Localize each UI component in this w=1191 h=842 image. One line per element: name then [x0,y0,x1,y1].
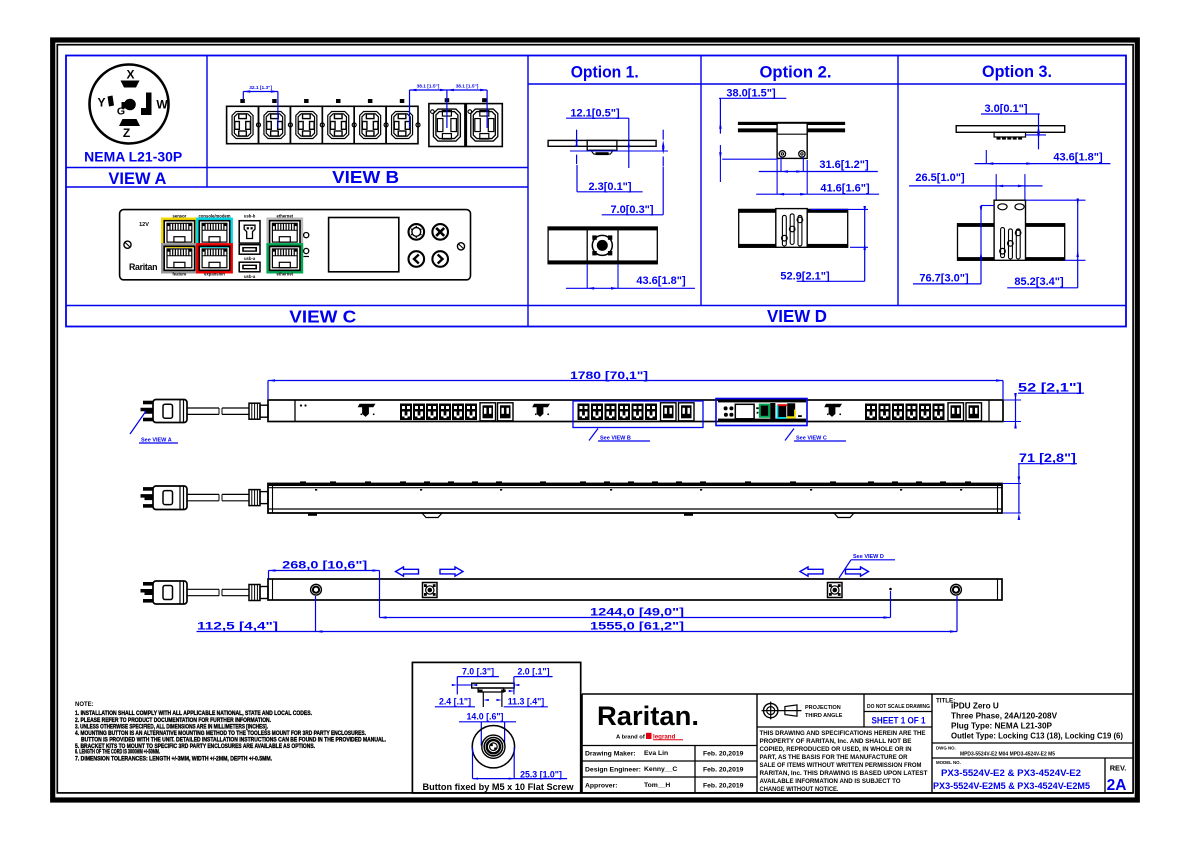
svg-text:2.4 [.1"]: 2.4 [.1"] [439,697,471,707]
svg-text:usb-b: usb-b [244,214,256,219]
svg-text:W: W [156,98,168,112]
svg-text:VIEW C: VIEW C [289,307,356,327]
svg-text:iPDU Zero U: iPDU Zero U [951,701,999,710]
svg-text:console/modem: console/modem [199,214,231,219]
svg-text:Raritan: Raritan [129,262,157,272]
svg-text:41.6[1.6"]: 41.6[1.6"] [820,183,870,195]
svg-text:DWG NO.: DWG NO. [936,746,956,751]
svg-text:Plug Type: NEMA L21-30P: Plug Type: NEMA L21-30P [951,721,1053,730]
svg-text:76.7[3.0"]: 76.7[3.0"] [919,273,969,285]
svg-text:X: X [126,68,134,82]
svg-text:112,5 [4,4"]: 112,5 [4,4"] [197,621,278,633]
svg-text:Z: Z [123,126,130,140]
svg-text:usb-a: usb-a [244,274,256,279]
svg-text:THIRD ANGLE: THIRD ANGLE [805,713,843,719]
svg-text:expansion: expansion [204,272,225,277]
svg-text:2A: 2A [1107,777,1127,794]
svg-text:PROJECTION: PROJECTION [805,705,841,711]
svg-text:RARITAN, Inc. THIS DRAWING IS: RARITAN, Inc. THIS DRAWING IS BASED UPON… [760,770,928,777]
svg-text:DO NOT SCALE DRAWING: DO NOT SCALE DRAWING [867,704,930,710]
svg-text:43.6[1.8"]: 43.6[1.8"] [1053,151,1103,163]
svg-text:ethernet: ethernet [277,272,294,277]
svg-text:1244,0 [49,0"]: 1244,0 [49,0"] [590,607,684,619]
svg-text:Eva Lin: Eva Lin [644,750,668,757]
svg-text:PROPERTY OF RARITAN, Inc. AND: PROPERTY OF RARITAN, Inc. AND SHALL NOT … [760,738,912,745]
svg-text:COPIED, REPRODUCED OR USED, IN: COPIED, REPRODUCED OR USED, IN WHOLE OR … [760,746,912,753]
svg-text:SHEET 1 OF 1: SHEET 1 OF 1 [872,716,927,727]
svg-text:Drawing Maker:: Drawing Maker: [585,751,636,758]
svg-text:Option 2.: Option 2. [760,63,832,82]
svg-text:85.2[3.4"]: 85.2[3.4"] [1014,276,1064,288]
svg-text:Feb. 20,2019: Feb. 20,2019 [703,751,744,758]
svg-text:Button fixed by M5 x 10 Flat S: Button fixed by M5 x 10 Flat Screw [423,782,575,792]
svg-text:ethernet: ethernet [277,214,294,219]
svg-text:NOTE:: NOTE: [75,702,94,708]
svg-text:14.0 [.6"]: 14.0 [.6"] [467,712,504,722]
svg-text:11.3 [.4"]: 11.3 [.4"] [508,697,545,707]
svg-text:VIEW D: VIEW D [767,306,827,326]
svg-text:43.6[1.8"]: 43.6[1.8"] [636,275,686,287]
svg-text:MODEL NO.: MODEL NO. [936,760,961,765]
svg-text:26.5[1.0"]: 26.5[1.0"] [915,172,965,184]
svg-text:SALE OF ITEMS WITHOUT WRITTEN: SALE OF ITEMS WITHOUT WRITTEN PERMISSION… [760,762,922,769]
svg-text:1. INSTALLATION SHALL COMPLY W: 1. INSTALLATION SHALL COMPLY WITH ALL AP… [75,710,312,717]
svg-text:Kenny__C: Kenny__C [644,766,677,773]
svg-text:38.1 [1.5"]: 38.1 [1.5"] [417,84,440,90]
svg-text:3.0[0.1"]: 3.0[0.1"] [984,103,1027,115]
svg-text:sensor: sensor [173,214,187,219]
svg-text:REV.: REV. [1110,764,1127,773]
svg-text:VIEW A: VIEW A [108,169,166,188]
svg-text:2.0 [.1"]: 2.0 [.1"] [517,667,549,677]
svg-text:PX3-5524V-E2M5 & PX3-4524V-E2M: PX3-5524V-E2M5 & PX3-4524V-E2M5 [933,781,1091,792]
svg-text:AVAILABLE INFORMATION AND IS S: AVAILABLE INFORMATION AND IS SUBJECT TO [760,778,901,785]
svg-text:Raritan.: Raritan. [597,701,699,731]
svg-text:A brand of: A brand of [616,735,645,741]
svg-text:Option 3.: Option 3. [982,62,1052,81]
svg-text:12V: 12V [139,222,149,228]
svg-text:CHANGE WITHOUT NOTICE.: CHANGE WITHOUT NOTICE. [760,786,839,793]
svg-text:NEMA L21-30P: NEMA L21-30P [84,149,182,164]
svg-text:Approver:: Approver: [585,783,617,790]
svg-text:7.0 [.3"]: 7.0 [.3"] [462,667,494,677]
svg-text:VIEW B: VIEW B [332,167,399,187]
svg-text:feature: feature [172,272,187,277]
svg-text:Option 1.: Option 1. [571,63,639,82]
svg-text:Feb. 20,2019: Feb. 20,2019 [703,783,744,790]
svg-text:Three Phase, 24A/120-208V: Three Phase, 24A/120-208V [951,712,1058,721]
svg-text:7. DIMENSION TOLERANCES: LENGT: 7. DIMENSION TOLERANCES: LENGTH +/-3MM, … [75,755,272,762]
svg-text:MPD3-5524V-E2 M04 MPD3-4524V-E: MPD3-5524V-E2 M04 MPD3-4524V-E2 M5 [960,752,1055,758]
svg-text:38.0[1.5"]: 38.0[1.5"] [726,88,776,100]
svg-text:PX3-5524V-E2 & PX3-4524V-E2: PX3-5524V-E2 & PX3-4524V-E2 [941,768,1081,779]
svg-text:Tom__H: Tom__H [644,782,670,789]
svg-text:Design Engineer:: Design Engineer: [585,767,641,774]
svg-text:usb-a: usb-a [244,256,256,261]
svg-text:PART, AS THE BASIS FOR THE MAN: PART, AS THE BASIS FOR THE MANUFACTURE O… [760,754,908,761]
svg-text:1555,0 [61,2"]: 1555,0 [61,2"] [590,621,684,633]
svg-text:25.3 [1.0"]: 25.3 [1.0"] [520,769,562,779]
svg-text:THIS DRAWING AND SPECIFICATION: THIS DRAWING AND SPECIFICATIONS HEREIN A… [760,730,926,737]
svg-text:Y: Y [97,96,105,110]
svg-text:Outlet Type: Locking C13 (18),: Outlet Type: Locking C13 (18), Locking C… [951,731,1123,740]
svg-text:Feb. 20,2019: Feb. 20,2019 [703,767,744,774]
svg-text:See VIEW D: See VIEW D [853,554,884,560]
svg-text:32.1 [1.3"]: 32.1 [1.3"] [249,85,272,91]
svg-text:G: G [117,106,125,118]
svg-text:38.1 [1.5"]: 38.1 [1.5"] [456,84,479,90]
svg-text:31.6[1.2"]: 31.6[1.2"] [819,159,869,171]
